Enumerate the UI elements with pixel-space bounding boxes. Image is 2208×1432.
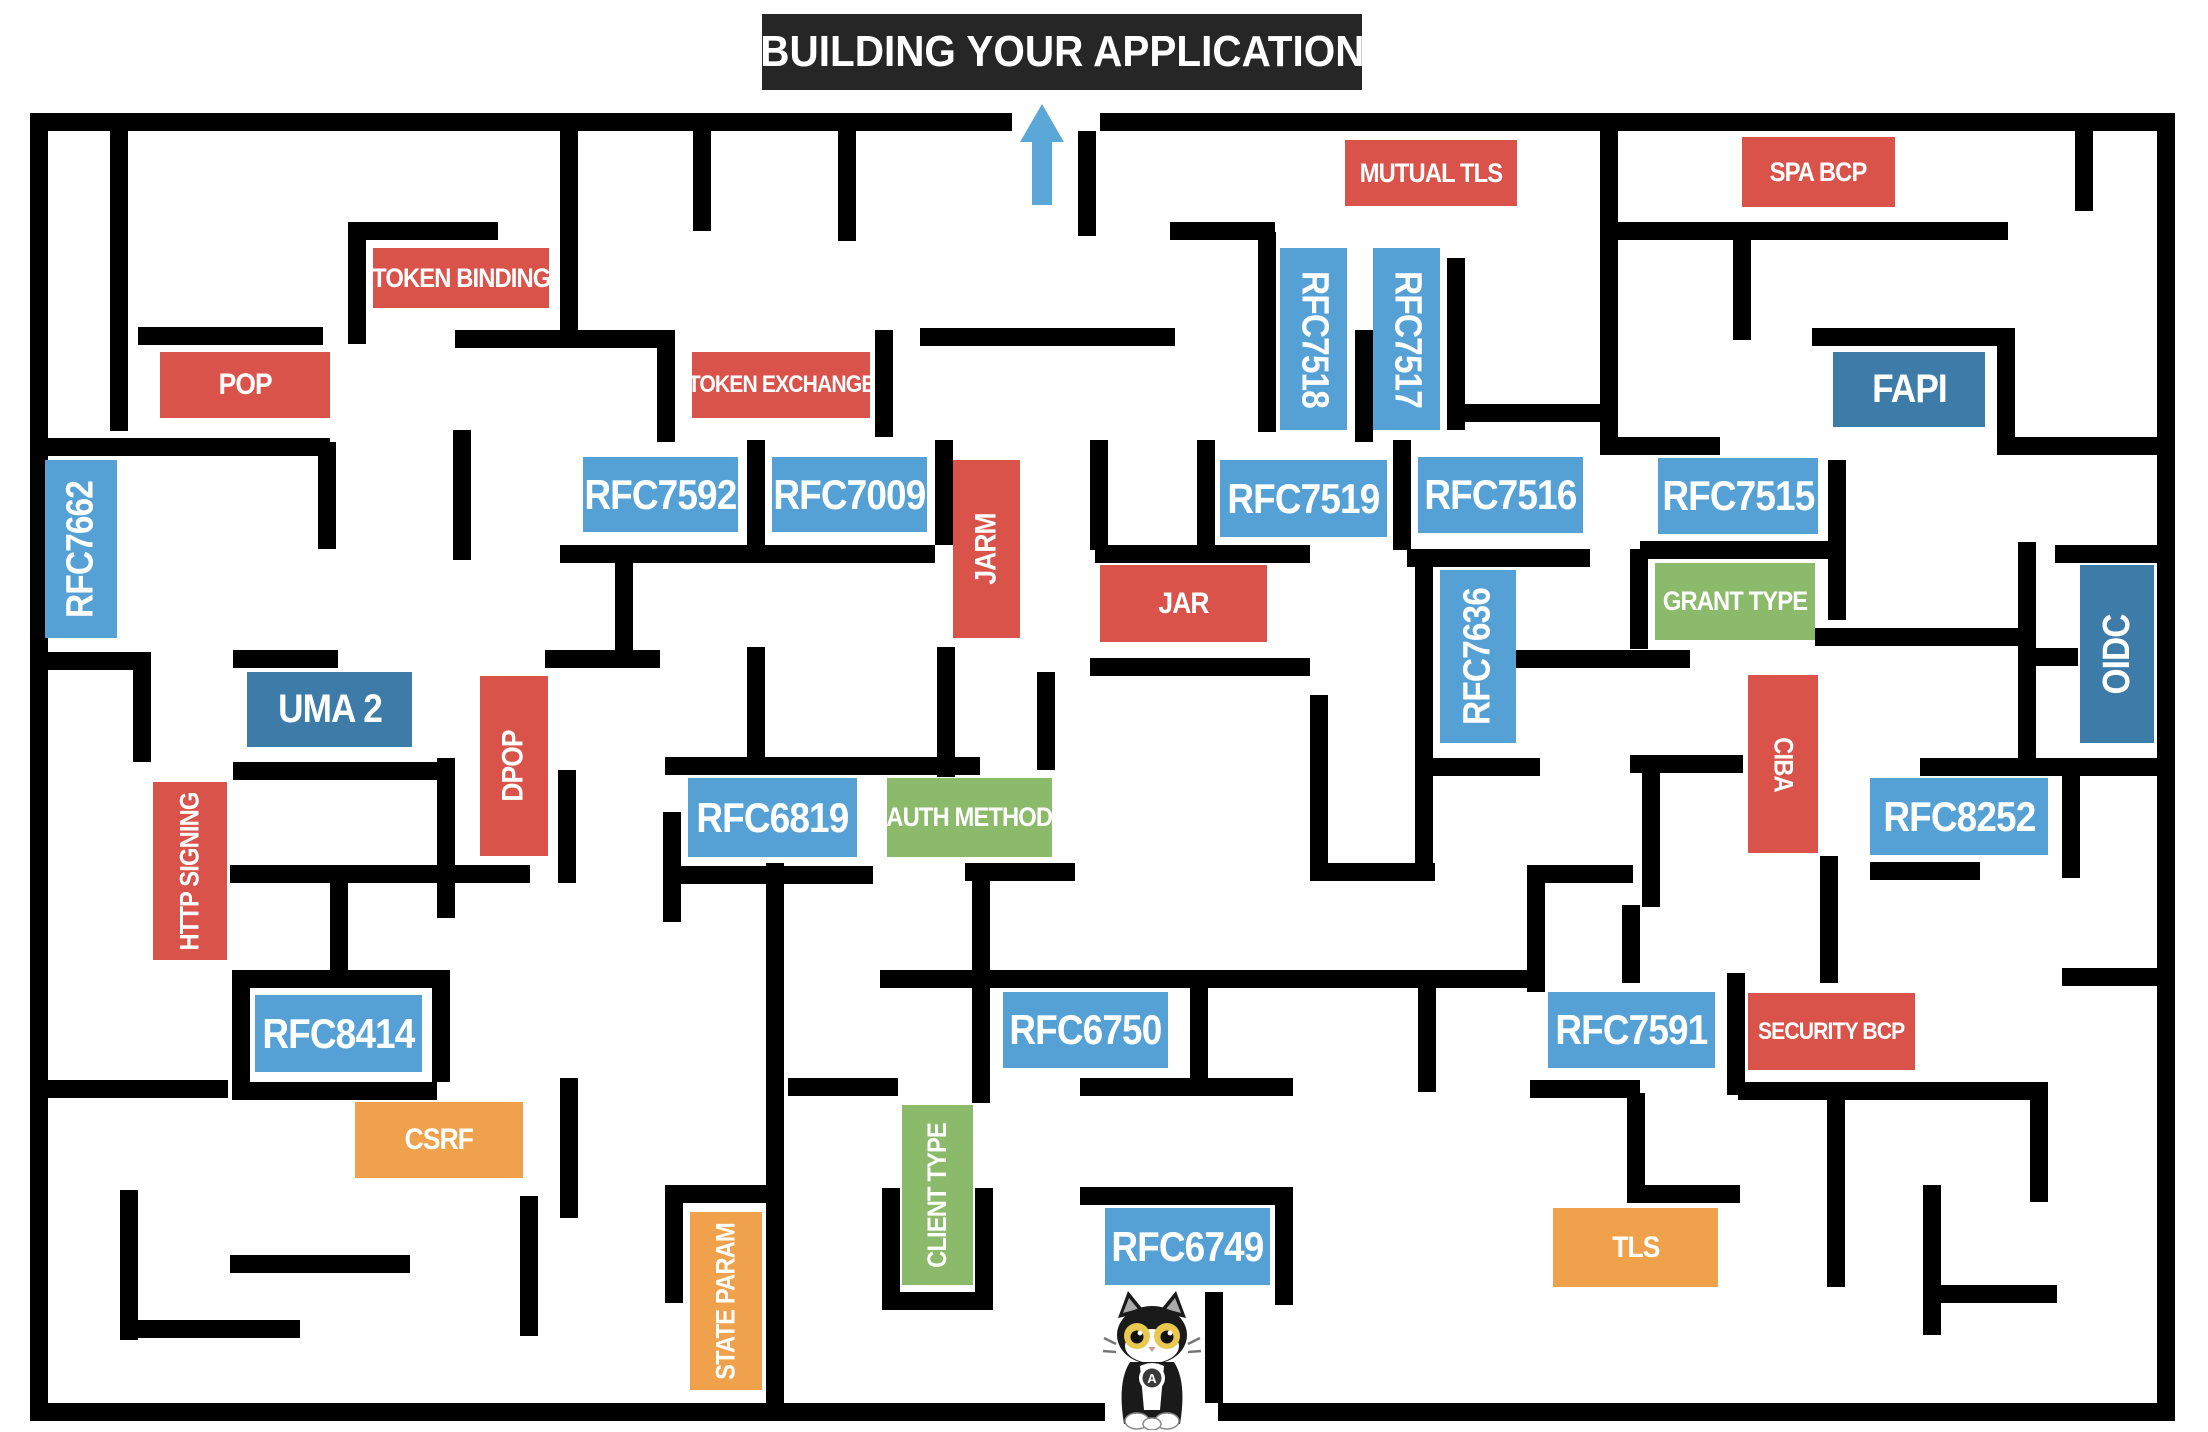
maze-wall: [1920, 758, 2157, 776]
maze-label-rfc7662: RFC7662: [45, 460, 117, 638]
poster-title: BUILDING YOUR APPLICATION: [762, 14, 1362, 90]
maze-label-state-param: STATE PARAM: [690, 1212, 762, 1390]
maze-wall: [1197, 440, 1215, 549]
maze-label-rfc6749: RFC6749: [1105, 1208, 1270, 1285]
maze-wall: [1812, 328, 2008, 346]
maze-wall: [1997, 437, 2157, 455]
maze-wall: [1310, 695, 1328, 877]
maze-wall: [1627, 1185, 1740, 1203]
maze-wall: [665, 1185, 777, 1203]
maze-label-pop: POP: [160, 352, 330, 418]
maze-wall: [838, 131, 856, 241]
maze-wall: [348, 222, 498, 240]
maze-label-rfc6750: RFC6750: [1003, 992, 1168, 1068]
poster-title-text: BUILDING YOUR APPLICATION: [760, 27, 1364, 77]
maze-wall: [230, 865, 530, 883]
maze-wall: [1870, 862, 1980, 880]
maze-wall: [432, 970, 450, 1082]
maze-label-rfc8414: RFC8414: [255, 995, 422, 1072]
maze-wall: [1727, 973, 1745, 1095]
maze-wall: [1090, 658, 1310, 676]
maze-label-security-bcp: SECURITY BCP: [1748, 993, 1915, 1070]
maze-label-tls: TLS: [1553, 1208, 1718, 1287]
maze-wall: [30, 438, 330, 456]
maze-wall: [2030, 1082, 2048, 1202]
maze-wall: [1415, 553, 1433, 865]
maze-label-rfc7517: RFC7517: [1373, 248, 1440, 430]
maze-wall: [437, 758, 455, 918]
cat-mascot: A: [1100, 1288, 1204, 1430]
cat-whiskers-right: [1188, 1338, 1201, 1352]
maze-label-client-type: CLIENT TYPE: [902, 1105, 973, 1285]
maze-wall: [1355, 330, 1373, 442]
maze-wall: [120, 1320, 300, 1338]
maze-wall: [766, 863, 784, 1403]
maze-wall: [665, 757, 980, 775]
maze-label-rfc6819: RFC6819: [688, 778, 857, 857]
maze-wall: [1275, 1187, 1293, 1305]
maze-wall: [882, 1188, 900, 1303]
maze-label-uma2: UMA 2: [247, 672, 412, 747]
maze-label-rfc7636: RFC7636: [1440, 570, 1516, 743]
maze-wall: [1600, 131, 1618, 451]
maze-wall: [1997, 328, 2015, 438]
maze-wall: [1100, 113, 2175, 131]
maze-label-rfc7592: RFC7592: [583, 457, 738, 532]
maze-wall: [133, 652, 151, 762]
maze-label-oidc: OIDC: [2080, 565, 2154, 743]
maze-wall: [2062, 968, 2157, 986]
maze-wall: [120, 1190, 138, 1340]
maze-label-token-binding: TOKEN BINDING: [373, 248, 549, 308]
maze-wall: [1420, 758, 1540, 776]
maze-wall: [1447, 404, 1602, 422]
maze-wall: [545, 650, 660, 668]
maze-wall: [233, 762, 438, 780]
maze-label-fapi: FAPI: [1833, 352, 1985, 427]
maze-wall: [1393, 440, 1411, 550]
maze-label-auth-method: AUTH METHOD: [887, 778, 1052, 857]
maze-label-spa-bcp: SPA BCP: [1742, 137, 1895, 207]
maze-wall: [1622, 905, 1640, 983]
maze-wall: [1618, 222, 2008, 240]
maze-label-rfc7591: RFC7591: [1548, 992, 1715, 1068]
maze-wall: [1080, 1078, 1293, 1096]
maze-wall: [1037, 672, 1055, 770]
maze-wall: [1937, 1285, 2057, 1303]
maze-label-token-exchange: TOKEN EXCHANGE: [692, 352, 870, 418]
maze-wall: [875, 330, 893, 437]
maze-wall: [48, 1080, 228, 1098]
maze-wall: [1630, 549, 1648, 649]
exit-arrow-icon: [1020, 104, 1064, 205]
maze-wall: [1600, 437, 1720, 455]
maze-wall: [1815, 628, 2018, 646]
maze-wall: [1205, 1292, 1223, 1403]
maze-wall: [1078, 131, 1096, 236]
maze-wall: [232, 970, 250, 1083]
maze-wall: [2075, 131, 2093, 211]
maze-wall: [1627, 1093, 1645, 1198]
maze-label-jar: JAR: [1100, 565, 1267, 642]
maze-label-csrf: CSRF: [355, 1102, 523, 1178]
maze-wall: [788, 1078, 898, 1096]
maze-label-http-signing: HTTP SIGNING: [153, 782, 227, 960]
maze-wall: [1530, 1080, 1640, 1098]
maze-wall: [1923, 1185, 1941, 1335]
maze-label-rfc7515: RFC7515: [1658, 458, 1818, 534]
maze-wall: [1218, 1403, 2175, 1421]
maze-label-rfc7009: RFC7009: [772, 457, 927, 532]
maze-wall: [920, 328, 1175, 346]
maze-label-grant-type: GRANT TYPE: [1655, 563, 1815, 640]
maze-wall: [880, 970, 1540, 988]
maze-label-mutual-tls: MUTUAL TLS: [1345, 140, 1517, 206]
maze-wall: [318, 442, 336, 549]
maze-wall: [657, 330, 675, 442]
maze-wall: [1828, 460, 1846, 620]
maze-wall: [1738, 1082, 2045, 1100]
maze-wall: [935, 440, 953, 545]
maze-wall: [1407, 549, 1590, 567]
maze-label-dpop: DPOP: [480, 676, 548, 856]
maze-wall: [1820, 856, 1838, 983]
maze-wall: [453, 430, 471, 560]
maze-wall: [30, 113, 48, 1421]
maze-wall: [1310, 863, 1435, 881]
maze-wall: [1640, 541, 1830, 559]
maze-wall: [138, 327, 323, 345]
maze-wall: [2157, 113, 2175, 1421]
maze-wall: [1495, 650, 1690, 668]
maze-label-ciba: CIBA: [1748, 675, 1818, 853]
maze-wall: [1090, 440, 1108, 550]
maze-wall: [455, 330, 675, 348]
maze-wall: [110, 131, 128, 431]
svg-text:A: A: [1147, 1371, 1157, 1386]
maze-wall: [232, 970, 435, 988]
maze-wall: [233, 650, 338, 668]
maze-wall: [1418, 972, 1436, 1092]
maze-wall: [1190, 970, 1208, 1078]
maze-wall: [30, 113, 1012, 131]
maze-wall: [330, 878, 348, 983]
maze-wall: [1642, 767, 1660, 907]
maze-wall: [693, 131, 711, 231]
maze-wall: [558, 770, 576, 883]
maze-wall: [560, 1078, 578, 1218]
maze-poster: BUILDING YOUR APPLICATION RFC7662 POP TO…: [0, 0, 2208, 1432]
maze-wall: [2018, 648, 2078, 666]
maze-wall: [348, 222, 366, 344]
maze-wall: [747, 647, 765, 767]
maze-wall: [1733, 240, 1751, 340]
maze-wall: [1827, 1093, 1845, 1287]
maze-wall: [1080, 1187, 1293, 1205]
maze-wall: [747, 440, 765, 550]
maze-wall: [30, 652, 140, 670]
maze-wall: [1258, 232, 1276, 432]
maze-wall: [615, 563, 633, 658]
maze-wall: [975, 1188, 993, 1305]
maze-wall: [30, 1403, 1105, 1421]
cat-whiskers-left: [1103, 1338, 1116, 1352]
maze-wall: [2062, 772, 2080, 878]
maze-label-rfc8252: RFC8252: [1870, 778, 2048, 855]
maze-wall: [560, 545, 935, 563]
maze-label-rfc7516: RFC7516: [1418, 457, 1583, 533]
maze-wall: [230, 1255, 410, 1273]
maze-label-rfc7518: RFC7518: [1280, 248, 1347, 430]
maze-wall: [2055, 545, 2157, 563]
maze-wall: [560, 131, 578, 348]
maze-wall: [232, 1082, 437, 1100]
maze-label-rfc7519: RFC7519: [1220, 460, 1387, 537]
maze-label-jarm: JARM: [953, 460, 1020, 638]
maze-wall: [520, 1196, 538, 1336]
